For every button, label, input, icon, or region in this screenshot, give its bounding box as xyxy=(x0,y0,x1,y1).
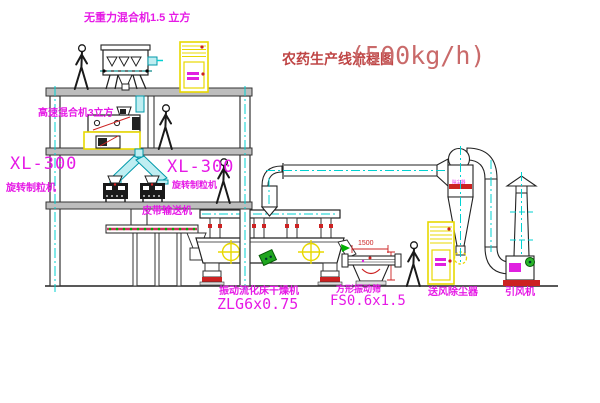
belt-conveyor-label: 皮带输送机 xyxy=(142,207,192,217)
person-figure xyxy=(159,105,172,149)
gravity-free-mixer xyxy=(100,45,163,90)
sieve-dimension-text: 1500 xyxy=(358,240,374,247)
person-figure xyxy=(407,242,420,286)
sieve-model-label: FS0.6x1.5 xyxy=(330,294,406,308)
dryer-supports xyxy=(208,218,333,238)
fan-label: 引风机 xyxy=(505,288,535,298)
rotary-granulators xyxy=(103,176,165,202)
control-cabinet-1 xyxy=(180,42,208,92)
exhaust-duct xyxy=(262,159,448,216)
dust-collector-label: 送风除尘器 xyxy=(428,288,478,298)
drawing-title-capacity: (500kg/h) xyxy=(350,41,485,70)
cyclone-tag-text: 除尘器 xyxy=(452,181,466,186)
control-cabinet-2 xyxy=(428,222,454,284)
granulator-center-name-label: 旋转制粒机 xyxy=(172,181,217,190)
fluid-bed-dryer xyxy=(196,210,344,285)
high-speed-mixer-label: 高速混合机3立方 xyxy=(38,109,114,119)
dryer-spring-mounts xyxy=(200,263,342,285)
granulator-left-unit xyxy=(103,176,128,202)
granulator-left-model-label: XL-300 xyxy=(10,156,77,173)
person-figure xyxy=(75,45,88,89)
high-speed-mixer xyxy=(84,96,144,149)
process-flow-drawing: 无重力混合机1.5 立方 高速混合机3立方 XL-300 旋转制粒机 XL-30… xyxy=(0,0,600,403)
cyclone-separator xyxy=(448,146,510,274)
granulator-left-name-label: 旋转制粒机 xyxy=(6,184,56,194)
granulator-center-model-label: XL-300 xyxy=(167,159,234,176)
induced-draft-fan xyxy=(503,256,540,286)
gravity-mixer-label: 无重力混合机1.5 立方 xyxy=(84,13,190,24)
belt-conveyor xyxy=(106,209,207,286)
dryer-model-label: ZLG6x0.75 xyxy=(217,297,298,312)
